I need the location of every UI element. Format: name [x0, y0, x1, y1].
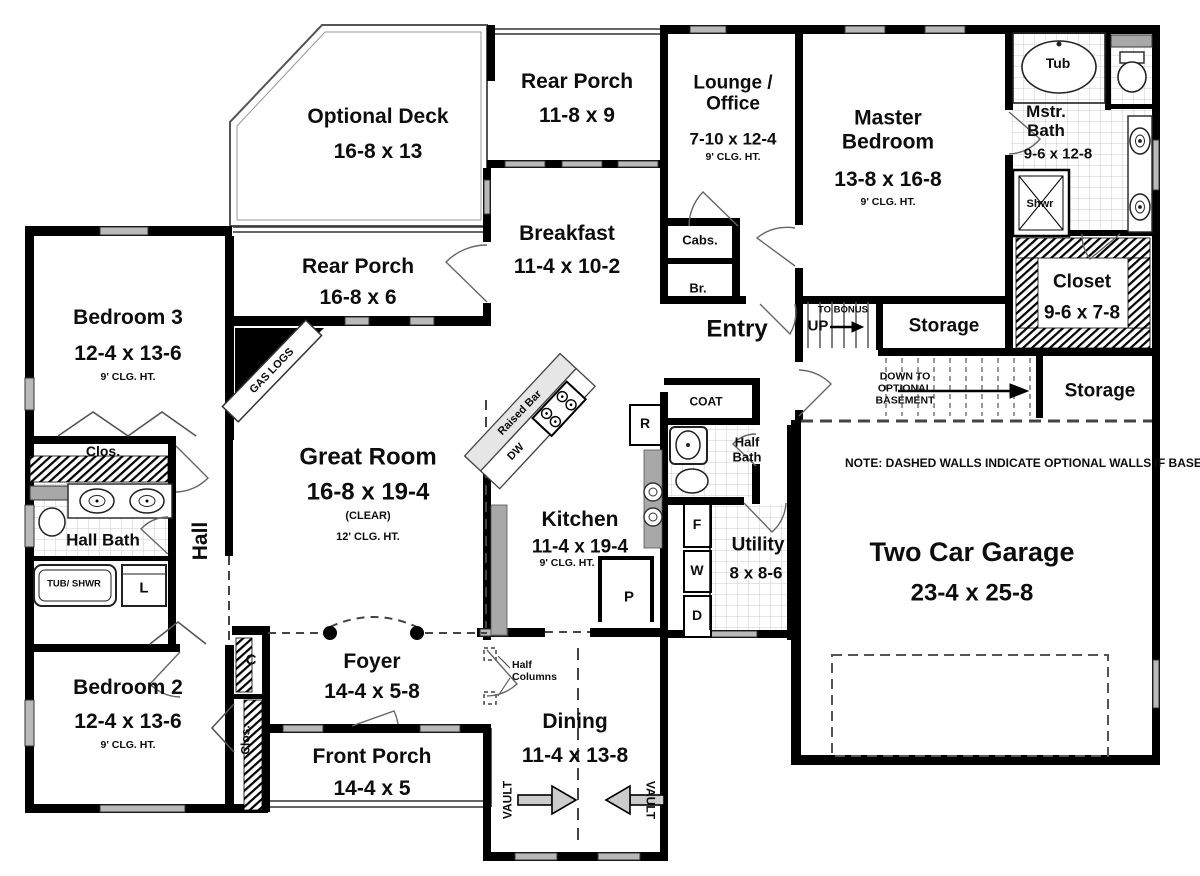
dryer-label: D: [692, 608, 702, 624]
room-ceiling-great-room: 12' CLG. HT.: [336, 531, 400, 543]
room-dims-kitchen: 11-4 x 19-4: [532, 536, 628, 557]
washer-label: W: [690, 563, 703, 579]
room-label-garage: Two Car Garage: [869, 537, 1074, 567]
walls: [25, 25, 1160, 861]
room-label-utility: Utility: [732, 534, 785, 555]
room-note-great-room: (CLEAR): [345, 510, 390, 522]
vault-label-left: VAULT: [501, 781, 514, 819]
room-label-great-room: Great Room: [299, 445, 436, 472]
room-label-master-closet: Closet: [1053, 271, 1111, 292]
master-vanity: [1128, 116, 1152, 232]
room-label-hall: Hall: [189, 522, 213, 561]
refrigerator-label: R: [640, 416, 650, 432]
arch-columns: [323, 626, 424, 640]
up-label: UP: [808, 319, 829, 336]
room-dims-master-bath: 9-6 x 12-8: [1024, 147, 1092, 164]
room-label-kitchen: Kitchen: [541, 508, 618, 532]
linen-label: L: [139, 581, 148, 598]
room-label-optional-deck: Optional Deck: [307, 105, 448, 129]
room-dims-garage: 23-4 x 25-8: [911, 581, 1034, 608]
room-label-bedroom2: Bedroom 2: [73, 676, 183, 700]
porch-edges: [233, 29, 662, 807]
tub-label: Tub: [1046, 56, 1071, 72]
closet-bedroom2-small-label: C: [246, 653, 257, 670]
windows: [25, 26, 1159, 860]
room-label-half-bath: Half Bath: [724, 435, 770, 464]
room-ceiling-bedroom3: 9' CLG. HT.: [100, 372, 155, 384]
room-ceiling-kitchen: 9' CLG. HT.: [539, 558, 594, 570]
room-dims-master-bedroom: 13-8 x 16-8: [834, 168, 941, 192]
room-label-front-porch: Front Porch: [313, 745, 432, 769]
room-ceiling-bedroom2: 9' CLG. HT.: [100, 740, 155, 752]
room-label-rear-porch-lower: Rear Porch: [302, 255, 414, 279]
room-dims-optional-deck: 16-8 x 13: [334, 140, 423, 164]
pantry-label: P: [624, 590, 634, 607]
room-dims-breakfast: 11-4 x 10-2: [514, 255, 620, 279]
room-label-entry: Entry: [706, 317, 767, 344]
tub-shower-label: TUB/ SHWR: [47, 580, 101, 591]
vault-arrows: [518, 786, 664, 814]
room-dims-rear-porch-upper: 11-8 x 9: [539, 104, 615, 128]
room-label-lounge-office: Lounge / Office: [673, 73, 793, 116]
room-label-foyer: Foyer: [343, 650, 400, 674]
room-ceiling-master-bedroom: 9' CLG. HT.: [860, 197, 915, 209]
room-dims-rear-porch-lower: 16-8 x 6: [319, 286, 396, 310]
room-dims-dining: 11-4 x 13-8: [522, 744, 628, 768]
room-label-rear-porch-upper: Rear Porch: [521, 70, 633, 94]
room-dims-front-porch: 14-4 x 5: [333, 777, 410, 801]
room-label-storage-inner: Storage: [909, 315, 980, 336]
broom-label: Br.: [689, 282, 706, 297]
closet-bedroom2-label: Clos.: [239, 725, 252, 754]
room-dims-master-closet: 9-6 x 7-8: [1044, 302, 1120, 323]
half-columns-label: Half Columns: [512, 660, 568, 684]
room-label-hall-bath: Hall Bath: [66, 530, 140, 549]
room-label-dining: Dining: [542, 710, 607, 734]
room-label-breakfast: Breakfast: [519, 222, 615, 246]
closet-hall-label: Clos.: [86, 444, 120, 460]
down-to-basement-label: DOWN TO OPTIONAL BASEMENT: [858, 371, 952, 406]
floor-plan: Optional Deck 16-8 x 13 Rear Porch 11-8 …: [0, 0, 1200, 876]
basement-note: NOTE: DASHED WALLS INDICATE OPTIONAL WAL…: [845, 455, 1140, 471]
room-dims-lounge-office: 7-10 x 12-4: [690, 129, 777, 148]
room-label-master-bedroom: Master Bedroom: [823, 106, 953, 153]
vault-label-right: VAULT: [643, 781, 656, 819]
freezer-label: F: [693, 517, 702, 533]
cabinets-label: Cabs.: [682, 234, 717, 249]
coat-label: COAT: [689, 395, 722, 408]
room-dims-great-room: 16-8 x 19-4: [307, 480, 430, 507]
room-label-bedroom3: Bedroom 3: [73, 306, 183, 330]
room-dims-utility: 8 x 8-6: [730, 563, 783, 582]
to-bonus-label: TO BONUS: [818, 306, 868, 317]
shower-label: Shwr: [1027, 198, 1054, 210]
room-label-master-bath: Mstr. Bath: [1013, 102, 1079, 140]
room-ceiling-lounge-office: 9' CLG. HT.: [705, 152, 760, 164]
half-bath-fixtures: [670, 427, 708, 493]
room-dims-foyer: 14-4 x 5-8: [324, 680, 420, 704]
room-dims-bedroom3: 12-4 x 13-6: [74, 342, 181, 366]
room-label-storage-outer: Storage: [1065, 380, 1136, 401]
room-dims-bedroom2: 12-4 x 13-6: [74, 710, 181, 734]
